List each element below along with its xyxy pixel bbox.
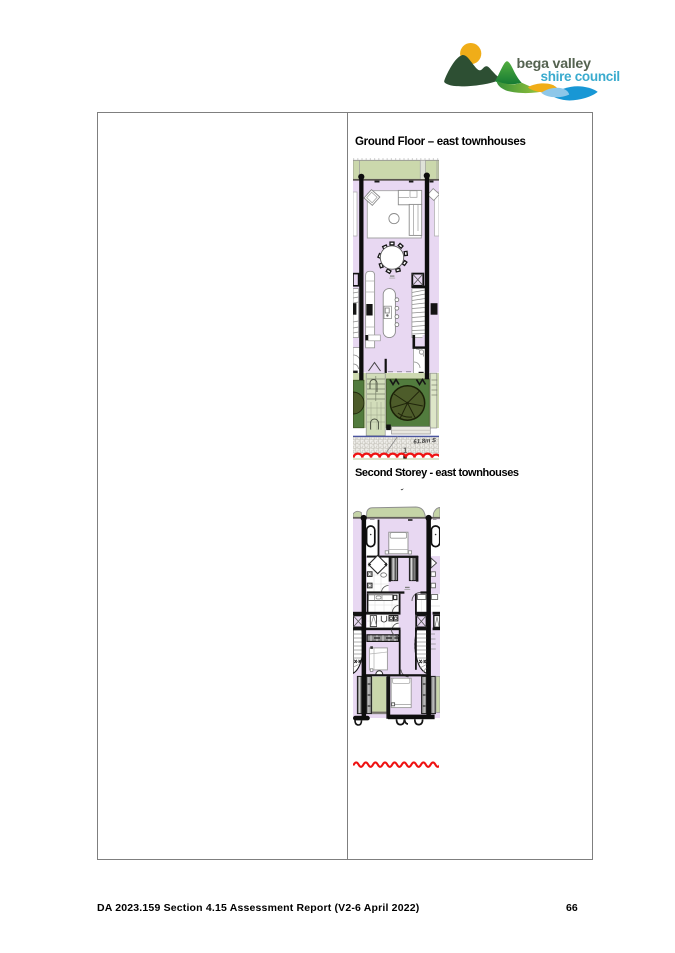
svg-text:shire council: shire council xyxy=(541,69,620,84)
